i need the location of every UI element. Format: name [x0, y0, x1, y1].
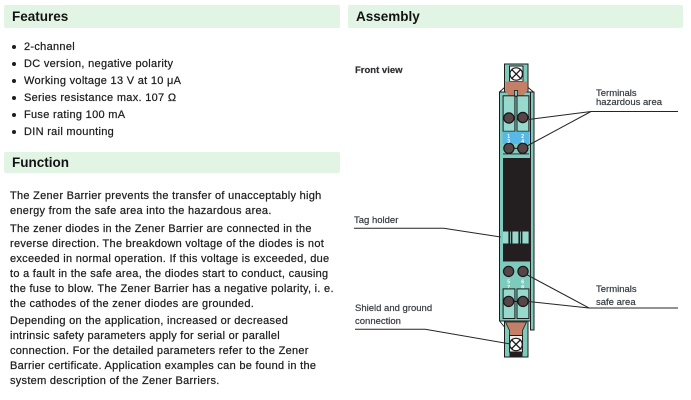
- svg-text:3: 3: [507, 139, 510, 145]
- svg-text:4: 4: [521, 139, 524, 145]
